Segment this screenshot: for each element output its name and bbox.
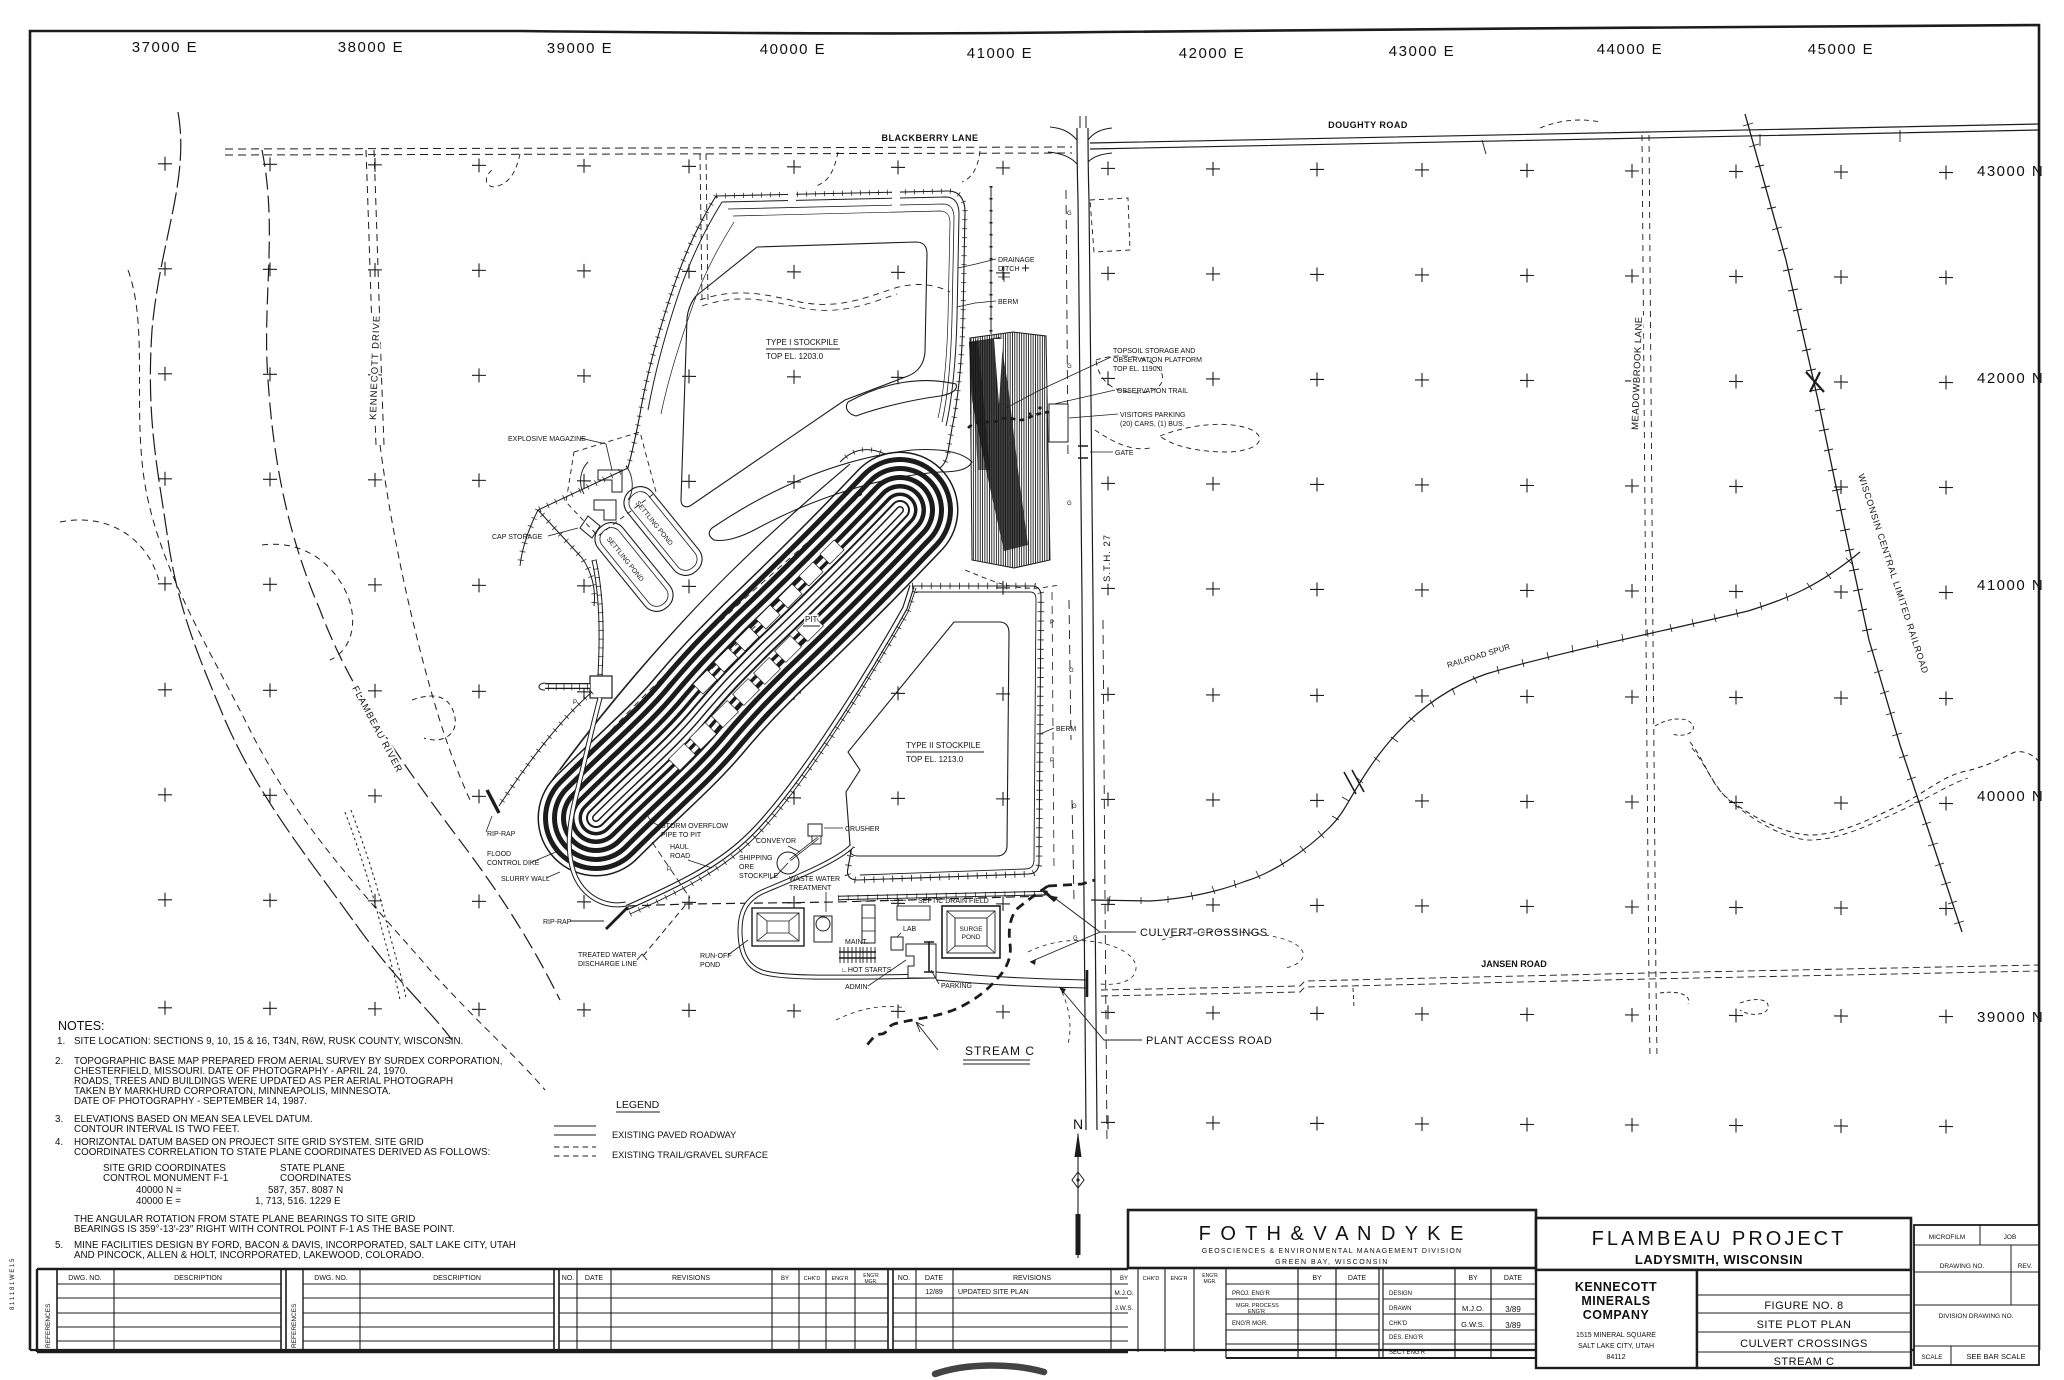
svg-text:CRUSHER: CRUSHER xyxy=(845,826,880,833)
svg-text:SURGE: SURGE xyxy=(959,926,983,933)
svg-text:SLURRY WALL: SLURRY WALL xyxy=(501,876,550,883)
svg-text:F O T H & V A N D Y K E: F O T H & V A N D Y K E xyxy=(1199,1223,1466,1245)
svg-text:FLOOD: FLOOD xyxy=(487,851,511,858)
svg-text:LAB: LAB xyxy=(903,926,917,933)
svg-text:BERM: BERM xyxy=(1056,726,1076,733)
svg-text:SEPTIC DRAIN FIELD: SEPTIC DRAIN FIELD xyxy=(918,898,989,905)
svg-text:GEOSCIENCES & ENVIRONMENTAL: GEOSCIENCES & ENVIRONMENTAL MANAGEMENT D… xyxy=(1202,1248,1462,1255)
svg-text:DIVISION DRAWING NO.: DIVISION DRAWING NO. xyxy=(1939,1313,2014,1320)
svg-text:JANSEN ROAD: JANSEN ROAD xyxy=(1481,959,1547,969)
svg-text:EXISTING TRAIL/GRAVEL SURFACE: EXISTING TRAIL/GRAVEL SURFACE xyxy=(612,1150,768,1160)
svg-text:40000 N =: 40000 N = xyxy=(136,1185,182,1196)
svg-text:PIT: PIT xyxy=(805,615,818,624)
svg-text:DESCRIPTION: DESCRIPTION xyxy=(174,1275,222,1282)
svg-text:DATE: DATE xyxy=(1348,1275,1366,1282)
svg-text:5.: 5. xyxy=(55,1240,63,1251)
svg-text:TYPE I STOCKPILE: TYPE I STOCKPILE xyxy=(766,338,838,347)
svg-text:CONTROL MONUMENT F-1: CONTROL MONUMENT F-1 xyxy=(103,1173,228,1184)
svg-text:SITE LOCATION: SECTIONS 9, 10,: SITE LOCATION: SECTIONS 9, 10, 15 & 16, … xyxy=(74,1036,463,1047)
svg-text:ENG'R MGR.: ENG'R MGR. xyxy=(1232,1321,1268,1327)
svg-text:S.T.H. 27: S.T.H. 27 xyxy=(1102,534,1113,582)
svg-text:SITE PLOT PLAN: SITE PLOT PLAN xyxy=(1757,1319,1852,1331)
svg-text:ORE: ORE xyxy=(739,864,755,871)
svg-text:P: P xyxy=(573,700,577,706)
svg-text:38000 E: 38000 E xyxy=(338,39,404,56)
svg-text:84112: 84112 xyxy=(1607,1354,1626,1361)
svg-text:37000 E: 37000 E xyxy=(132,39,198,56)
svg-text:TOP EL. 1213.0: TOP EL. 1213.0 xyxy=(906,755,964,764)
svg-text:VISITORS PARKING: VISITORS PARKING xyxy=(1120,412,1185,419)
svg-text:REFERENCES: REFERENCES xyxy=(291,1303,298,1348)
svg-text:COMPANY: COMPANY xyxy=(1583,1308,1650,1322)
svg-text:40000 E: 40000 E xyxy=(760,41,826,58)
svg-text:3.: 3. xyxy=(55,1114,63,1125)
svg-text:POND: POND xyxy=(962,934,981,941)
svg-text:587, 357. 8087 N: 587, 357. 8087 N xyxy=(268,1185,343,1196)
svg-text:DESIGN: DESIGN xyxy=(1389,1291,1412,1297)
svg-text:MGR.: MGR. xyxy=(1203,1279,1216,1285)
svg-text:1, 713, 516. 1229 E: 1, 713, 516. 1229 E xyxy=(255,1196,341,1207)
svg-text:DITCH: DITCH xyxy=(998,266,1019,273)
svg-text:DOUGHTY ROAD: DOUGHTY ROAD xyxy=(1328,120,1408,130)
svg-text:42000 N: 42000 N xyxy=(1977,370,2044,387)
svg-text:39000 N: 39000 N xyxy=(1977,1009,2044,1026)
svg-text:P: P xyxy=(597,858,601,864)
svg-text:DRAWN: DRAWN xyxy=(1389,1306,1411,1312)
svg-text:PROJ. ENG'R: PROJ. ENG'R xyxy=(1232,1291,1270,1297)
svg-text:CHK'D: CHK'D xyxy=(1143,1276,1160,1282)
svg-text:CULVERT CROSSINGS: CULVERT CROSSINGS xyxy=(1140,927,1268,939)
svg-text:MINERALS: MINERALS xyxy=(1581,1294,1650,1308)
svg-text:TREATED WATER: TREATED WATER xyxy=(578,952,637,959)
svg-text:DATE: DATE xyxy=(585,1275,603,1282)
svg-text:JOB: JOB xyxy=(2004,1234,2017,1241)
svg-text:TYPE II STOCKPILE: TYPE II STOCKPILE xyxy=(906,741,981,750)
svg-text:PLANT ACCESS ROAD: PLANT ACCESS ROAD xyxy=(1146,1035,1272,1047)
svg-text:FLAMBEAU PROJECT: FLAMBEAU PROJECT xyxy=(1592,1228,1847,1250)
svg-text:DATE: DATE xyxy=(925,1275,943,1282)
svg-text:PIPE TO PIT: PIPE TO PIT xyxy=(661,832,702,839)
svg-text:KENNECOTT: KENNECOTT xyxy=(1575,1280,1657,1294)
svg-text:TOP EL. 1203.0: TOP EL. 1203.0 xyxy=(766,352,824,361)
svg-text:MGR.: MGR. xyxy=(864,1279,877,1285)
svg-text:REFERENCES: REFERENCES xyxy=(45,1303,52,1348)
svg-text:EXPLOSIVE MAGAZINE: EXPLOSIVE MAGAZINE xyxy=(508,436,586,443)
svg-text:G.W.S.: G.W.S. xyxy=(1461,1320,1485,1329)
svg-text:P: P xyxy=(1050,758,1054,764)
svg-text:STREAM C: STREAM C xyxy=(1774,1356,1835,1368)
svg-text:SCALE: SCALE xyxy=(1921,1354,1943,1361)
svg-text:P: P xyxy=(667,867,671,873)
svg-text:8 1 1 1 8 1 W E 1 5: 8 1 1 1 8 1 W E 1 5 xyxy=(10,1258,16,1310)
svg-text:PARKING: PARKING xyxy=(941,983,972,990)
svg-text:TOP EL. 1190.0: TOP EL. 1190.0 xyxy=(1113,366,1163,373)
svg-text:TREATMENT: TREATMENT xyxy=(789,885,832,892)
svg-text:CONTOUR INTERVAL IS TWO FEET.: CONTOUR INTERVAL IS TWO FEET. xyxy=(74,1124,239,1135)
svg-text:MAINT.: MAINT. xyxy=(845,939,868,946)
svg-text:DESCRIPTION: DESCRIPTION xyxy=(433,1275,481,1282)
svg-text:ENG'R: ENG'R xyxy=(1171,1276,1188,1282)
svg-text:41000 N: 41000 N xyxy=(1977,577,2044,594)
svg-text:REV.: REV. xyxy=(2018,1263,2033,1270)
svg-text:NO.: NO. xyxy=(562,1275,575,1282)
svg-text:ENG'R: ENG'R xyxy=(1248,1309,1265,1315)
svg-text:RIP-RAP: RIP-RAP xyxy=(543,919,572,926)
svg-text:LADYSMITH, WISCONSIN: LADYSMITH, WISCONSIN xyxy=(1635,1252,1803,1267)
svg-text:FIGURE NO. 8: FIGURE NO. 8 xyxy=(1764,1300,1843,1312)
svg-text:MICROFILM: MICROFILM xyxy=(1929,1234,1965,1241)
svg-text:NOTES:: NOTES: xyxy=(58,1019,105,1033)
svg-text:WASTE WATER: WASTE WATER xyxy=(789,876,840,883)
svg-text:COORDINATES: COORDINATES xyxy=(280,1173,352,1184)
svg-text:EXISTING PAVED ROADWAY: EXISTING PAVED ROADWAY xyxy=(612,1130,736,1140)
svg-text:39000 E: 39000 E xyxy=(547,40,613,57)
svg-text:BLACKBERRY LANE: BLACKBERRY LANE xyxy=(881,133,978,143)
svg-text:DRAWING NO.: DRAWING NO. xyxy=(1940,1263,1985,1270)
svg-text:RUN-OFF: RUN-OFF xyxy=(700,953,732,960)
svg-text:DATE: DATE xyxy=(1504,1275,1522,1282)
svg-text:M.J.O.: M.J.O. xyxy=(1462,1304,1484,1313)
svg-text:AND PINCOCK, ALLEN & HOLT, INC: AND PINCOCK, ALLEN & HOLT, INCORPORATED,… xyxy=(74,1250,424,1261)
svg-text:REVISIONS: REVISIONS xyxy=(672,1275,710,1282)
svg-text:COORDINATES CORRELATION TO STA: COORDINATES CORRELATION TO STATE PLANE C… xyxy=(74,1147,490,1158)
svg-text:∟HOT STARTS: ∟HOT STARTS xyxy=(841,967,892,974)
svg-text:CAP STORAGE: CAP STORAGE xyxy=(492,534,543,541)
svg-text:DISCHARGE LINE: DISCHARGE LINE xyxy=(578,961,637,968)
svg-text:BY: BY xyxy=(1468,1275,1478,1282)
svg-text:SECT ENG'R: SECT ENG'R xyxy=(1389,1350,1426,1356)
svg-text:3/89: 3/89 xyxy=(1505,1321,1521,1330)
svg-text:DWG. NO.: DWG. NO. xyxy=(314,1275,347,1282)
svg-text:BY: BY xyxy=(781,1276,789,1282)
svg-text:M.J.O.: M.J.O. xyxy=(1114,1290,1133,1297)
svg-text:DWG. NO.: DWG. NO. xyxy=(68,1275,101,1282)
svg-text:SEE BAR SCALE: SEE BAR SCALE xyxy=(1966,1352,2025,1361)
svg-text:UPDATED SITE PLAN: UPDATED SITE PLAN xyxy=(958,1289,1029,1296)
svg-text:P: P xyxy=(1050,620,1054,626)
svg-text:REVISIONS: REVISIONS xyxy=(1013,1275,1051,1282)
svg-text:CULVERT CROSSINGS: CULVERT CROSSINGS xyxy=(1740,1338,1868,1350)
svg-text:STREAM C: STREAM C xyxy=(965,1044,1035,1058)
svg-text:NO.: NO. xyxy=(898,1275,911,1282)
svg-text:SALT LAKE CITY, UTAH: SALT LAKE CITY, UTAH xyxy=(1578,1343,1654,1350)
svg-text:LEGEND: LEGEND xyxy=(616,1099,660,1111)
svg-text:44000 E: 44000 E xyxy=(1597,41,1663,58)
svg-text:1515 MINERAL SQUARE: 1515 MINERAL SQUARE xyxy=(1576,1332,1656,1339)
svg-text:RIP-RAP: RIP-RAP xyxy=(487,831,516,838)
svg-text:12/89: 12/89 xyxy=(925,1289,943,1296)
svg-text:BEARINGS IS 359°-13′-23″ RIGHT: BEARINGS IS 359°-13′-23″ RIGHT WITH CONT… xyxy=(74,1224,455,1235)
svg-text:G: G xyxy=(1067,211,1072,217)
svg-text:STORM OVERFLOW: STORM OVERFLOW xyxy=(661,823,729,830)
svg-text:43000 N: 43000 N xyxy=(1977,163,2044,180)
svg-text:40000 E =: 40000 E = xyxy=(136,1196,181,1207)
svg-text:J.W.S.: J.W.S. xyxy=(1115,1305,1134,1312)
svg-text:CHK'D: CHK'D xyxy=(804,1276,821,1282)
svg-text:BY: BY xyxy=(1120,1276,1128,1282)
svg-text:43000 E: 43000 E xyxy=(1389,43,1455,60)
svg-text:SHIPPING: SHIPPING xyxy=(739,855,772,862)
svg-text:DATE OF PHOTOGRAPHY - SEPTEM: DATE OF PHOTOGRAPHY - SEPTEMBER 14, 1987… xyxy=(74,1096,307,1107)
svg-text:G: G xyxy=(1069,668,1074,674)
svg-text:TOPSOIL STORAGE AND: TOPSOIL STORAGE AND xyxy=(1113,348,1195,355)
svg-text:(20) CARS, (1) BUS.: (20) CARS, (1) BUS. xyxy=(1120,421,1185,428)
svg-text:STOCKPILE: STOCKPILE xyxy=(739,873,778,880)
svg-text:CONTROL DIKE: CONTROL DIKE xyxy=(487,860,540,867)
svg-text:OBSERVATION TRAIL: OBSERVATION TRAIL xyxy=(1117,388,1188,395)
svg-text:40000 N: 40000 N xyxy=(1977,788,2044,805)
svg-text:42000 E: 42000 E xyxy=(1179,45,1245,62)
svg-text:DRAINAGE: DRAINAGE xyxy=(998,257,1035,264)
svg-text:2.: 2. xyxy=(55,1056,63,1067)
svg-text:ROAD: ROAD xyxy=(670,853,690,860)
svg-text:GATE: GATE xyxy=(1115,450,1134,457)
svg-text:CONVEYOR: CONVEYOR xyxy=(756,838,796,845)
svg-text:1.: 1. xyxy=(57,1036,65,1047)
svg-text:BERM: BERM xyxy=(998,299,1018,306)
svg-text:POND: POND xyxy=(700,962,720,969)
svg-text:4.: 4. xyxy=(55,1137,63,1148)
svg-text:41000 E: 41000 E xyxy=(967,45,1033,62)
svg-text:N: N xyxy=(1073,1116,1083,1132)
svg-text:45000 E: 45000 E xyxy=(1808,41,1874,58)
svg-text:GREEN BAY, WISCONSIN: GREEN BAY, WISCONSIN xyxy=(1275,1259,1389,1266)
svg-text:G: G xyxy=(1067,501,1072,507)
svg-text:G: G xyxy=(1067,364,1072,370)
svg-text:ADMIN.: ADMIN. xyxy=(845,984,870,991)
svg-text:HAUL: HAUL xyxy=(670,844,689,851)
svg-text:G: G xyxy=(1072,804,1077,810)
svg-text:3/89: 3/89 xyxy=(1505,1305,1521,1314)
svg-text:DES. ENG'R: DES. ENG'R xyxy=(1389,1335,1424,1341)
svg-text:ENG'R: ENG'R xyxy=(832,1276,849,1282)
svg-text:G: G xyxy=(1073,936,1078,942)
svg-text:OBSERVATION PLATFORM: OBSERVATION PLATFORM xyxy=(1113,357,1202,364)
svg-text:BY: BY xyxy=(1312,1275,1322,1282)
svg-text:CHK'D: CHK'D xyxy=(1389,1321,1408,1327)
